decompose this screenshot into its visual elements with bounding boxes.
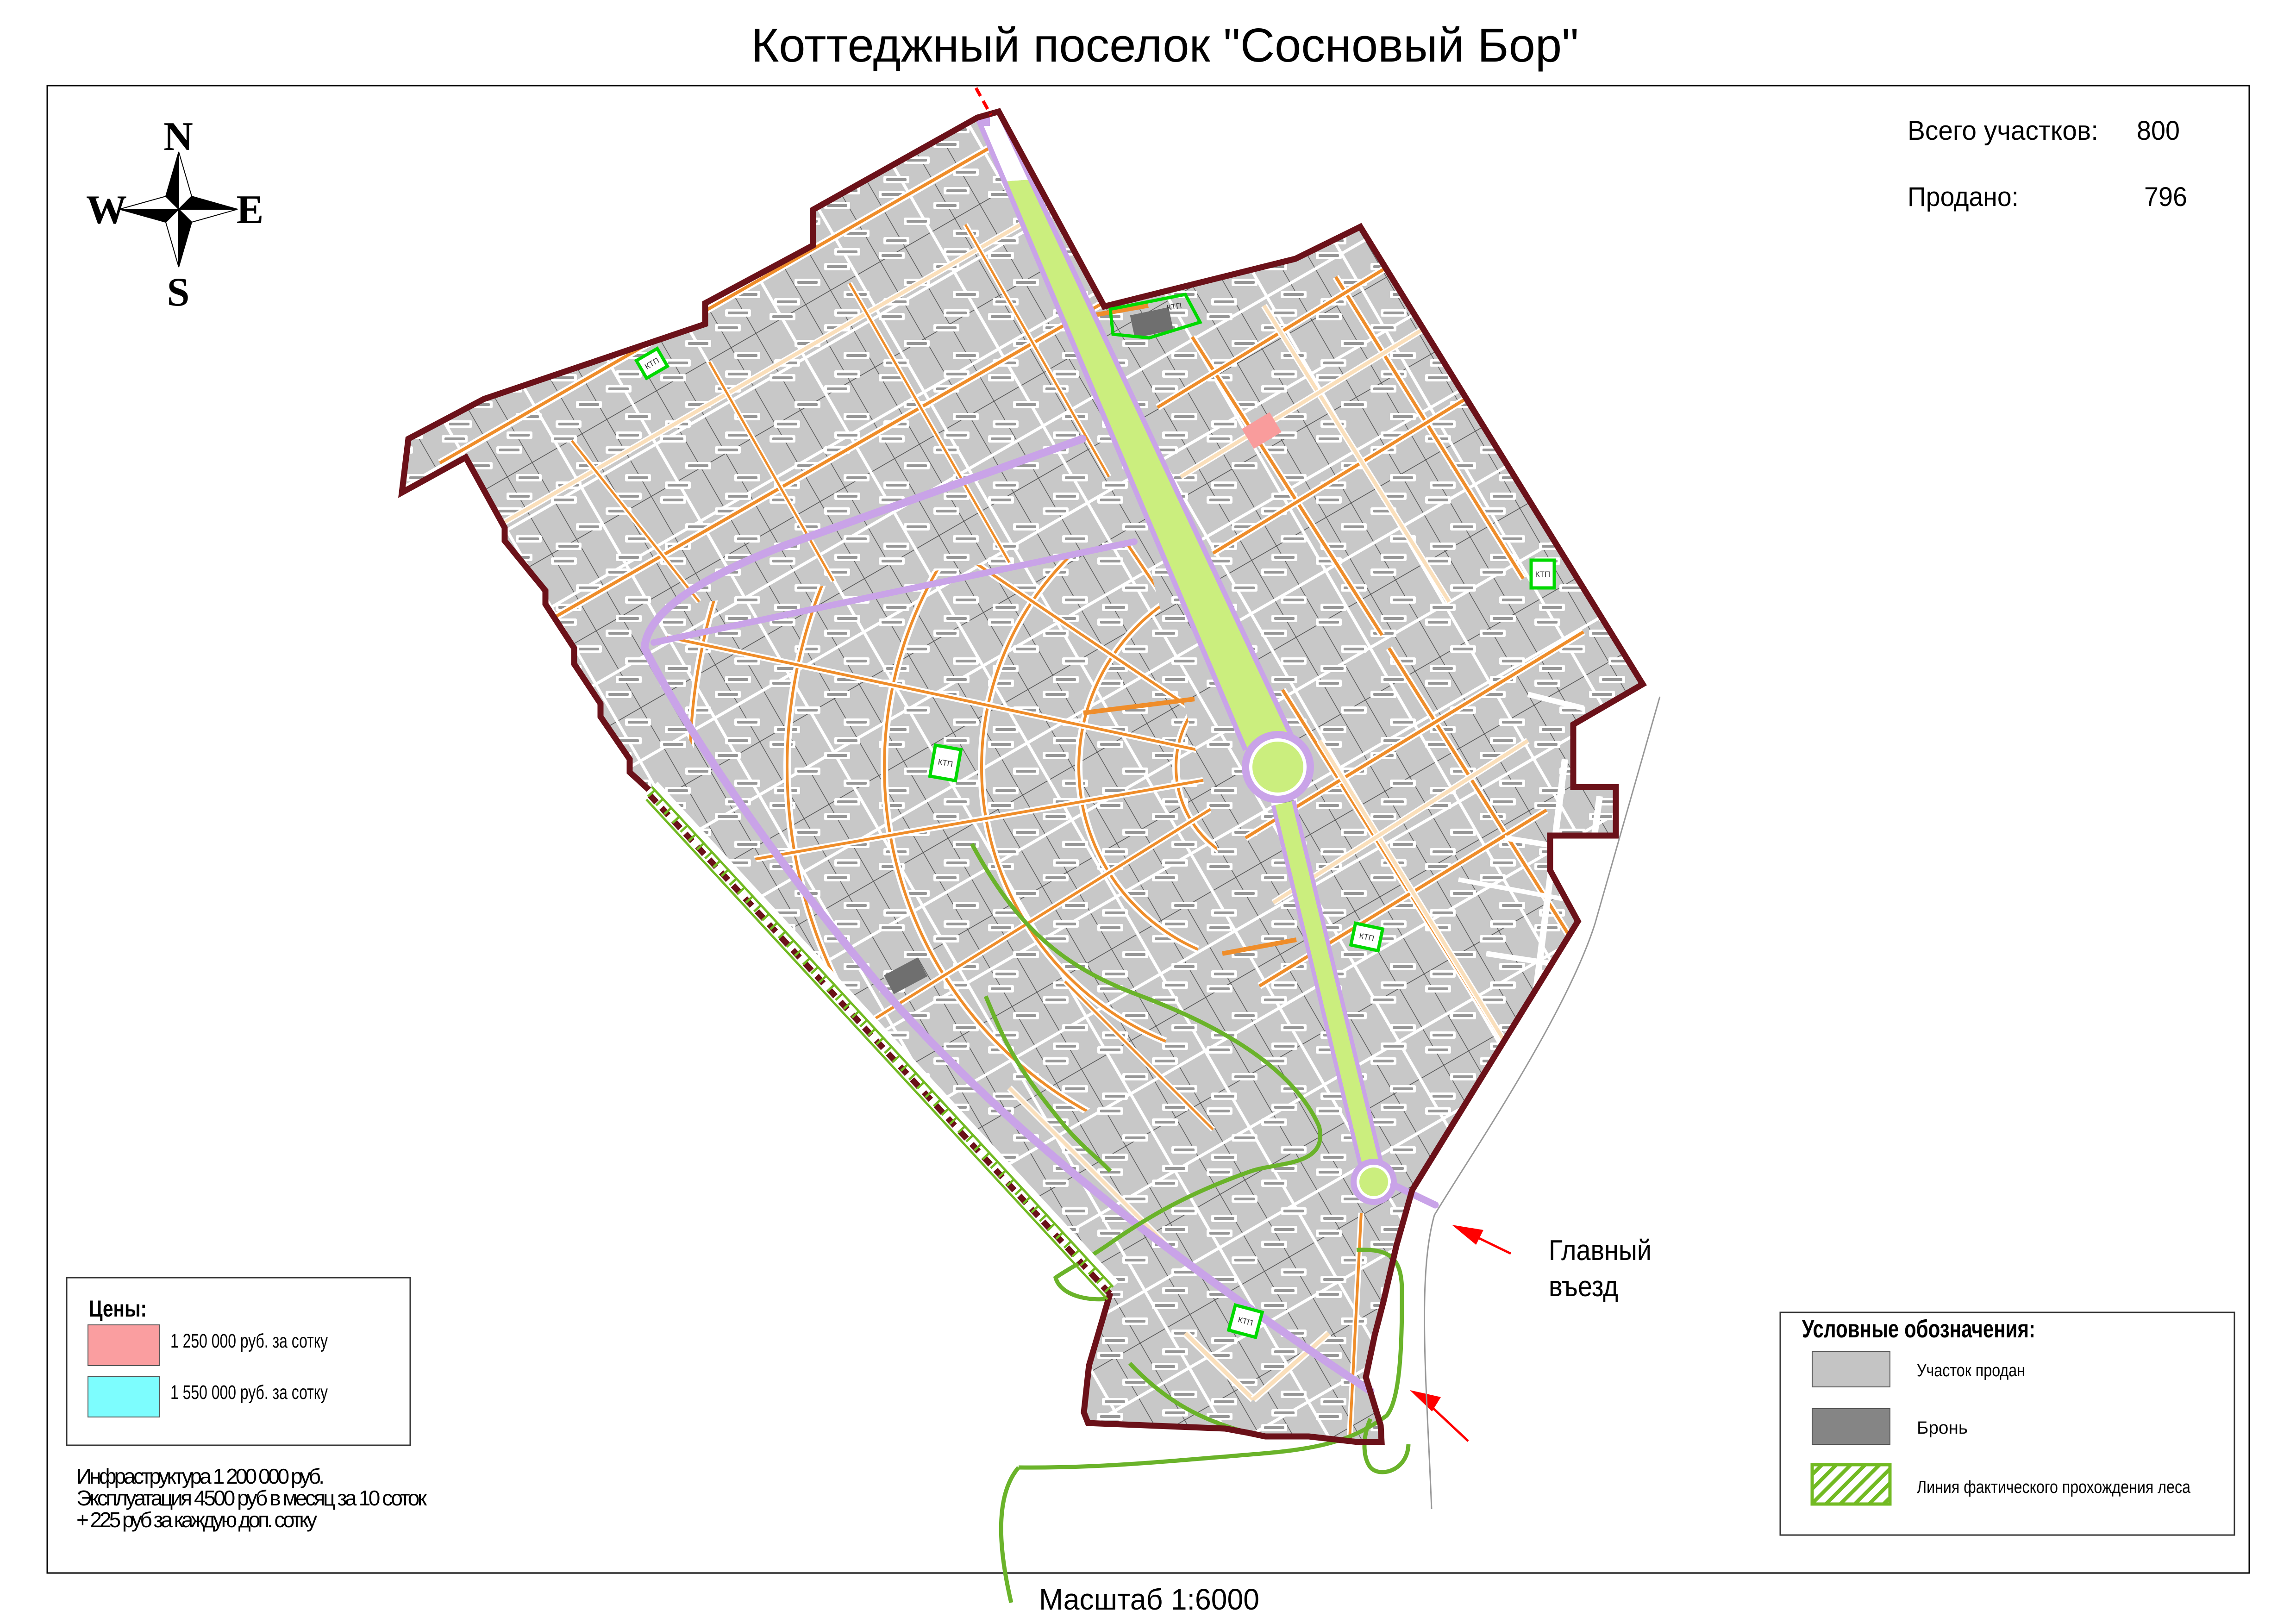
svg-text:Масштаб 1:6000: Масштаб 1:6000 [1039, 1583, 1259, 1616]
svg-text:800: 800 [2137, 116, 2180, 146]
svg-text:Линия фактического прохождения: Линия фактического прохождения леса [1917, 1478, 2191, 1497]
svg-text:Коттеджный поселок "Сосновый Б: Коттеджный поселок "Сосновый Бор" [751, 19, 1578, 72]
svg-text:Участок продан: Участок продан [1917, 1361, 2025, 1380]
svg-text:1 550 000 руб. за сотку: 1 550 000 руб. за сотку [170, 1381, 328, 1404]
svg-text:КТП: КТП [1535, 570, 1551, 579]
svg-text:Главный: Главный [1549, 1235, 1652, 1267]
svg-text:W: W [86, 187, 127, 232]
svg-text:Условные обозначения:: Условные обозначения: [1802, 1315, 2035, 1343]
svg-text:+ 225 руб за каждую доп. сотку: + 225 руб за каждую доп. сотку [76, 1508, 317, 1532]
svg-text:въезд: въезд [1549, 1271, 1618, 1303]
svg-text:Бронь: Бронь [1917, 1418, 1968, 1438]
svg-text:Цены:: Цены: [89, 1296, 147, 1322]
svg-text:N: N [163, 114, 193, 159]
svg-text:1 250 000 руб. за сотку: 1 250 000 руб. за сотку [170, 1330, 328, 1352]
svg-text:E: E [237, 187, 264, 232]
svg-text:S: S [167, 270, 190, 315]
svg-text:Всего участков:: Всего участков: [1908, 116, 2098, 146]
svg-text:796: 796 [2144, 182, 2187, 212]
svg-text:Эксплуатация 4500 руб в месяц: Эксплуатация 4500 руб в месяц за 10 сото… [76, 1486, 427, 1510]
svg-text:Инфраструктура 1 200 000 руб.: Инфраструктура 1 200 000 руб. [76, 1464, 325, 1488]
svg-text:Продано:: Продано: [1908, 182, 2019, 212]
